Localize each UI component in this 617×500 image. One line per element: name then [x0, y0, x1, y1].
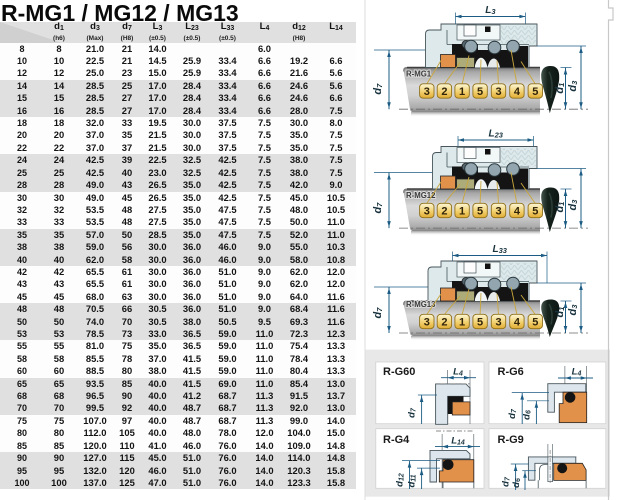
svg-text:R-G9: R-G9	[498, 434, 524, 446]
svg-text:3: 3	[424, 86, 430, 98]
svg-text:3: 3	[495, 317, 501, 329]
svg-text:R-MG1: R-MG1	[406, 70, 432, 79]
svg-text:4: 4	[514, 206, 521, 218]
svg-text:3: 3	[424, 317, 430, 329]
svg-text:1: 1	[459, 317, 465, 329]
svg-text:4: 4	[514, 317, 521, 329]
svg-text:2: 2	[441, 206, 447, 218]
svg-text:d3: d3	[567, 304, 579, 316]
svg-text:5: 5	[532, 206, 538, 218]
svg-text:4: 4	[514, 86, 521, 98]
svg-text:d3: d3	[567, 199, 579, 211]
svg-text:5: 5	[477, 86, 483, 98]
svg-text:5: 5	[532, 317, 538, 329]
svg-text:d3: d3	[567, 80, 579, 92]
svg-text:R-G60: R-G60	[383, 366, 415, 378]
svg-text:L33: L33	[493, 244, 508, 255]
svg-text:L23: L23	[489, 129, 504, 140]
svg-text:3: 3	[495, 206, 501, 218]
svg-text:R-G6: R-G6	[498, 366, 524, 378]
svg-text:3: 3	[424, 206, 430, 218]
svg-text:d7: d7	[372, 307, 384, 319]
svg-text:5: 5	[477, 206, 483, 218]
svg-text:2: 2	[441, 317, 447, 329]
svg-text:1: 1	[459, 206, 465, 218]
svg-text:d7: d7	[372, 202, 384, 214]
svg-text:5: 5	[477, 317, 483, 329]
svg-text:R-G4: R-G4	[383, 434, 410, 446]
svg-text:1: 1	[459, 86, 465, 98]
svg-text:3: 3	[495, 86, 501, 98]
svg-text:5: 5	[532, 86, 538, 98]
svg-text:d7: d7	[372, 83, 384, 95]
svg-text:2: 2	[441, 86, 447, 98]
svg-text:L3: L3	[485, 5, 496, 16]
